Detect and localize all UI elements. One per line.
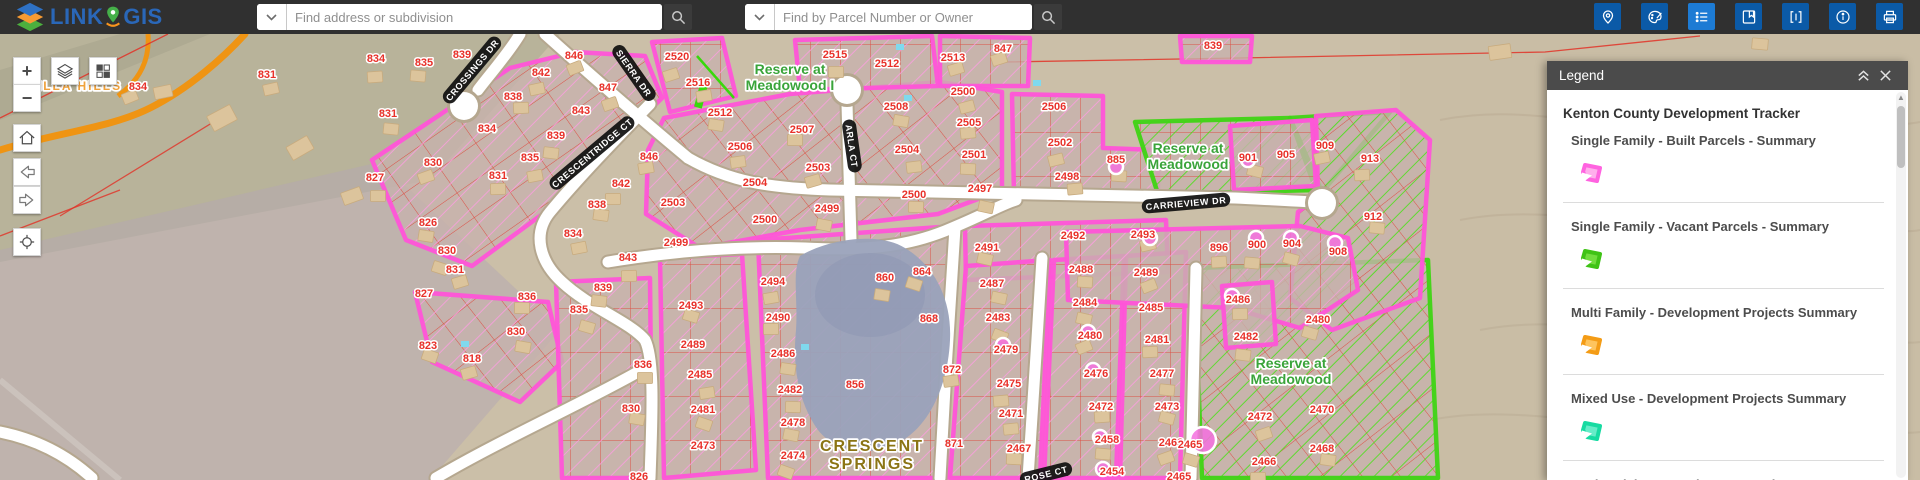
parcel-number-label: 2508 — [884, 101, 908, 113]
parcel-number-label: 2479 — [994, 344, 1018, 356]
parcel-number-label: 905 — [1277, 149, 1295, 161]
parcel-number-label: 885 — [1107, 154, 1125, 166]
parcel-number-label: 2473 — [691, 440, 715, 452]
parcel-number-label: 2476 — [1084, 368, 1108, 380]
parcel-number-label: 864 — [913, 266, 932, 278]
code-brackets-icon — [1787, 8, 1805, 26]
parcel-number-label: 2485 — [688, 369, 712, 381]
parcel-number-label: 2466 — [1252, 456, 1276, 468]
parcel-number-label: 843 — [572, 105, 590, 117]
parcel-number-label: 908 — [1329, 246, 1347, 258]
parcel-number-label: 2487 — [980, 278, 1004, 290]
parcel-number-label: 834 — [129, 81, 148, 93]
parcel-search — [745, 4, 1062, 30]
parcel-number-label: 2503 — [661, 197, 685, 209]
parcel-number-label: 838 — [504, 91, 522, 103]
legend-item-label: Single Family - Vacant Parcels - Summary — [1571, 219, 1884, 234]
parcel-number-label: 2501 — [962, 149, 986, 161]
parcel-number-label: 839 — [453, 49, 471, 61]
basemap-grid-button[interactable] — [89, 57, 117, 85]
logo-text: LINK GIS — [50, 4, 163, 30]
parcel-number-label: 2473 — [1155, 401, 1179, 413]
parcel-number-label: 860 — [876, 272, 894, 284]
parcel-number-label: 2467 — [1007, 443, 1031, 455]
home-icon — [17, 128, 37, 148]
parcel-number-label: 2520 — [665, 51, 689, 63]
parcel-number-label: 830 — [438, 245, 456, 257]
parcel-number-label: 2482 — [778, 384, 802, 396]
zoom-out-button[interactable]: − — [13, 84, 41, 112]
legend-item: Multi Family - Development Projects Summ… — [1571, 305, 1884, 358]
parcel-number-label: 900 — [1248, 239, 1266, 251]
legend-item-label: Mixed Use - Development Projects Summary — [1571, 391, 1884, 406]
parcel-number-label: 2470 — [1310, 404, 1334, 416]
parcel-number-label: 830 — [424, 157, 442, 169]
parcel-number-label: 835 — [415, 57, 433, 69]
parcel-number-label: 830 — [507, 326, 525, 338]
place-label: Meadowood I — [746, 77, 835, 93]
parcel-number-label: 2504 — [895, 144, 920, 156]
legend-group-title: Kenton County Development Tracker — [1563, 106, 1884, 121]
parcel-number-label: 2504 — [743, 177, 768, 189]
parcel-number-label: 842 — [612, 178, 630, 190]
parcel-number-label: 830 — [622, 403, 640, 415]
parcel-number-label: 2484 — [1073, 297, 1098, 309]
parcel-number-label: 856 — [846, 379, 864, 391]
parcel-number-label: 834 — [367, 53, 386, 65]
layers-logo-icon — [10, 1, 50, 33]
parcel-number-label: 843 — [619, 252, 637, 264]
parcel-number-label: 846 — [565, 50, 583, 62]
parcel-number-label: 835 — [521, 152, 539, 164]
address-search — [257, 4, 692, 30]
bookmarks-tool-button[interactable] — [1735, 3, 1762, 30]
double-chevron-up-icon — [1856, 69, 1871, 83]
parcel-number-label: 834 — [478, 123, 497, 135]
parcel-number-label: 2454 — [1100, 466, 1125, 478]
legend-item: Single Family - Vacant Parcels - Summary — [1571, 219, 1884, 272]
parcel-number-label: 2500 — [753, 214, 777, 226]
parcel-number-label: 839 — [547, 130, 565, 142]
parcel-number-label: 2481 — [691, 404, 715, 416]
locate-tool-button[interactable] — [1594, 3, 1621, 30]
parcel-number-label: 2465 — [1178, 439, 1202, 451]
layers-button[interactable] — [51, 57, 79, 85]
parcel-number-label: 2497 — [968, 183, 992, 195]
parcel-number-label: 868 — [920, 313, 938, 325]
chevron-down-icon — [266, 14, 277, 21]
parcel-number-label: 835 — [570, 304, 588, 316]
parcel-number-label: 2516 — [686, 77, 710, 89]
parcel-number-label: 2498 — [1055, 171, 1079, 183]
parcel-number-label: 2478 — [781, 417, 805, 429]
print-tool-button[interactable] — [1876, 3, 1903, 30]
parcel-number-label: 2499 — [815, 203, 839, 215]
parcel-number-label: 2477 — [1150, 368, 1174, 380]
parcel-number-label: 909 — [1316, 140, 1334, 152]
map-pin-logo-icon — [104, 4, 122, 30]
info-tool-button[interactable] — [1829, 3, 1856, 30]
legend-tool-button[interactable] — [1688, 3, 1715, 30]
legend-close-button[interactable] — [1875, 67, 1896, 84]
parcel-number-label: 2472 — [1089, 401, 1113, 413]
address-search-button[interactable] — [664, 4, 692, 30]
parcel-number-label: 2513 — [941, 52, 965, 64]
parcel-number-label: 839 — [1204, 40, 1222, 52]
parcel-number-label: 2499 — [664, 237, 688, 249]
search-icon — [1041, 10, 1056, 25]
legend-item-label: Single Family - Built Parcels - Summary — [1571, 133, 1884, 148]
parcel-number-label: 904 — [1283, 238, 1302, 250]
address-search-dropdown[interactable] — [257, 4, 287, 30]
close-icon — [1879, 69, 1892, 82]
linkgis-logo: LINK GIS — [10, 1, 163, 33]
place-label: Meadowood — [1148, 156, 1229, 172]
parcel-number-label: 2506 — [728, 141, 752, 153]
parcel-number-label: 2486 — [1226, 294, 1250, 306]
parcel-number-label: 871 — [945, 438, 963, 450]
legend-scrollbar[interactable]: ▲ — [1896, 92, 1906, 478]
parcel-number-label: 836 — [518, 291, 536, 303]
code-tool-button[interactable] — [1782, 3, 1809, 30]
forward-button[interactable] — [13, 186, 41, 214]
parcel-number-label: 2465 — [1167, 471, 1191, 480]
parcel-number-label: 2472 — [1248, 411, 1272, 423]
logo-word-link: LINK — [50, 4, 103, 30]
crosshair-icon — [17, 232, 37, 252]
place-label: CRESCENT — [820, 438, 924, 455]
logo-word-gis: GIS — [123, 4, 162, 30]
parcel-number-label: 2489 — [1134, 267, 1158, 279]
parcel-number-label: 2491 — [975, 242, 999, 254]
parcel-number-label: 847 — [599, 82, 617, 94]
parcel-number-label: 831 — [446, 264, 464, 276]
parcel-number-label: 2492 — [1061, 230, 1085, 242]
zoom-in-button[interactable]: + — [13, 57, 41, 85]
parcel-number-label: 2512 — [708, 107, 732, 119]
legend-list-icon — [1693, 8, 1711, 26]
parcel-number-label: 2500 — [902, 189, 926, 201]
legend-title: Legend — [1559, 68, 1604, 83]
draw-tool-button[interactable] — [1641, 3, 1668, 30]
legend-panel: Legend Kenton County Development Tracker… — [1547, 61, 1908, 480]
parcel-number-label: 827 — [415, 288, 433, 300]
parcel-number-label: 2490 — [766, 312, 790, 324]
legend-item: Single Family - Built Parcels - Summary — [1571, 133, 1884, 186]
parcel-number-label: 847 — [994, 43, 1012, 55]
parcel-number-label: 2474 — [781, 450, 806, 462]
home-button[interactable] — [13, 124, 41, 152]
parcel-number-label: 2503 — [806, 162, 830, 174]
parcel-number-label: 2458 — [1095, 434, 1119, 446]
parcel-number-label: 896 — [1210, 242, 1228, 254]
basemap-grid-icon — [94, 62, 112, 80]
parcel-number-label: 2483 — [986, 312, 1010, 324]
locate-icon — [1599, 8, 1617, 26]
legend-swatch — [1579, 246, 1884, 272]
legend-swatch — [1579, 160, 1884, 186]
parcel-search-dropdown[interactable] — [745, 4, 775, 30]
layers-icon — [55, 61, 75, 81]
legend-separator — [1563, 374, 1884, 375]
place-label: SPRINGS — [829, 456, 915, 473]
draw-palette-icon — [1646, 8, 1664, 26]
parcel-number-label: 2488 — [1069, 264, 1093, 276]
scrollbar-thumb[interactable] — [1897, 106, 1905, 168]
legend-body: Kenton County Development Tracker Single… — [1547, 90, 1894, 480]
legend-separator — [1563, 202, 1884, 203]
legend-separator — [1563, 460, 1884, 461]
bookmarks-icon — [1740, 8, 1758, 26]
back-button[interactable] — [13, 158, 41, 186]
parcel-number-label: 2505 — [957, 117, 981, 129]
parcel-number-label: 2493 — [1131, 229, 1155, 241]
parcel-number-label: 901 — [1239, 152, 1257, 164]
arrow-left-icon — [17, 163, 37, 181]
search-icon — [671, 10, 686, 25]
parcel-number-label: 826 — [630, 471, 648, 480]
parcel-number-label: 2480 — [1306, 314, 1330, 326]
parcel-number-label: 2481 — [1145, 334, 1169, 346]
parcel-number-label: 2500 — [951, 86, 975, 98]
parcel-number-label: 826 — [419, 217, 437, 229]
parcel-number-label: 831 — [489, 170, 507, 182]
parcel-number-label: 872 — [943, 364, 961, 376]
parcel-number-label: 2480 — [1078, 330, 1102, 342]
parcel-number-label: 2468 — [1310, 443, 1334, 455]
legend-item-label: Multi Family - Development Projects Summ… — [1571, 305, 1884, 320]
info-icon — [1834, 8, 1852, 26]
parcel-number-label: 2489 — [681, 339, 705, 351]
toolbar-buttons — [1594, 3, 1903, 30]
parcel-number-label: 2482 — [1234, 331, 1258, 343]
legend-item: Mixed Use - Development Projects Summary — [1571, 391, 1884, 444]
chevron-down-icon — [754, 14, 765, 21]
parcel-number-label: 2502 — [1048, 137, 1072, 149]
parcel-number-label: 827 — [366, 172, 384, 184]
parcel-number-label: 2493 — [679, 300, 703, 312]
legend-separator — [1563, 288, 1884, 289]
parcel-number-label: 836 — [634, 359, 652, 371]
legend-collapse-button[interactable] — [1852, 67, 1875, 85]
parcel-number-label: 2506 — [1042, 101, 1066, 113]
parcel-number-label: 2471 — [999, 408, 1023, 420]
place-label: Reserve at — [1256, 355, 1327, 371]
parcel-number-label: 834 — [564, 228, 583, 240]
parcel-search-button[interactable] — [1034, 4, 1062, 30]
parcel-number-label: 831 — [258, 69, 276, 81]
scroll-up-arrow[interactable]: ▲ — [1896, 93, 1906, 102]
legend-swatch — [1579, 332, 1884, 358]
parcel-number-label: 913 — [1361, 153, 1379, 165]
parcel-number-label: 823 — [419, 340, 437, 352]
parcel-number-label: 2486 — [771, 348, 795, 360]
parcel-number-label: 2475 — [997, 378, 1021, 390]
parcel-number-label: 839 — [594, 282, 612, 294]
parcel-number-label: 2507 — [790, 124, 814, 136]
parcel-number-label: 846 — [640, 151, 658, 163]
address-search-input[interactable] — [287, 4, 662, 30]
parcel-number-label: 838 — [588, 199, 606, 211]
place-label: Reserve at — [755, 61, 826, 77]
legend-header: Legend — [1547, 61, 1908, 90]
top-toolbar: LINK GIS — [0, 0, 1920, 34]
parcel-number-label: 842 — [532, 67, 550, 79]
place-label: Meadowood — [1251, 371, 1332, 387]
parcel-search-input[interactable] — [775, 4, 1032, 30]
parcel-number-label: 2512 — [875, 58, 899, 70]
print-icon — [1881, 8, 1899, 26]
parcel-number-label: 2494 — [761, 276, 786, 288]
parcel-number-label: 831 — [379, 108, 397, 120]
arrow-right-icon — [17, 191, 37, 209]
legend-swatch — [1579, 418, 1884, 444]
parcel-number-label: 912 — [1364, 211, 1382, 223]
parcel-number-label: 818 — [463, 353, 481, 365]
parcel-number-label: 2515 — [823, 49, 847, 61]
parcel-number-label: 2485 — [1139, 302, 1163, 314]
find-location-button[interactable] — [13, 228, 41, 256]
place-label: Reserve at — [1153, 140, 1224, 156]
linkgis-app: LINK GIS — [0, 0, 1920, 480]
